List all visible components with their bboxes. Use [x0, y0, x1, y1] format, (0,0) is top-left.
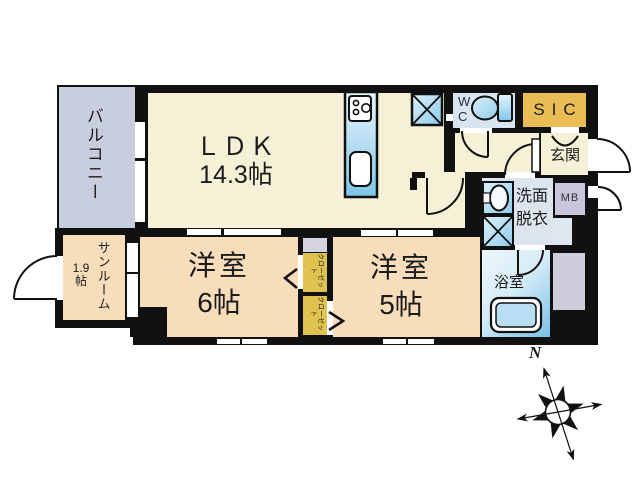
bathtub-icon — [491, 298, 541, 332]
toilet-icon — [472, 94, 512, 121]
fixtures-overlay — [0, 0, 640, 480]
kitchen-sink-icon — [350, 152, 371, 186]
washbasin-icon — [483, 182, 513, 214]
door-sunroom — [14, 256, 57, 299]
door-mb — [598, 187, 621, 210]
door-bathroom — [518, 250, 543, 275]
refrigerator-space-icon — [412, 94, 442, 125]
closet-lower-arrow — [329, 312, 343, 330]
floor-plan: バルコニー ＬＤＫ 14.3帖 洋室 6帖 洋室 5帖 サンルーム 1.9 帖 … — [0, 0, 640, 480]
door-ldk — [427, 178, 463, 214]
kitchen-counter-icon — [345, 92, 377, 197]
closet-upper-arrow — [285, 269, 297, 288]
door-sic — [552, 136, 578, 146]
washing-machine-icon — [483, 216, 513, 247]
stove-icon — [349, 96, 371, 121]
door-wc — [462, 131, 488, 157]
compass-rose — [503, 353, 616, 473]
door-washroom — [505, 139, 540, 175]
door-front-entrance — [597, 139, 630, 172]
